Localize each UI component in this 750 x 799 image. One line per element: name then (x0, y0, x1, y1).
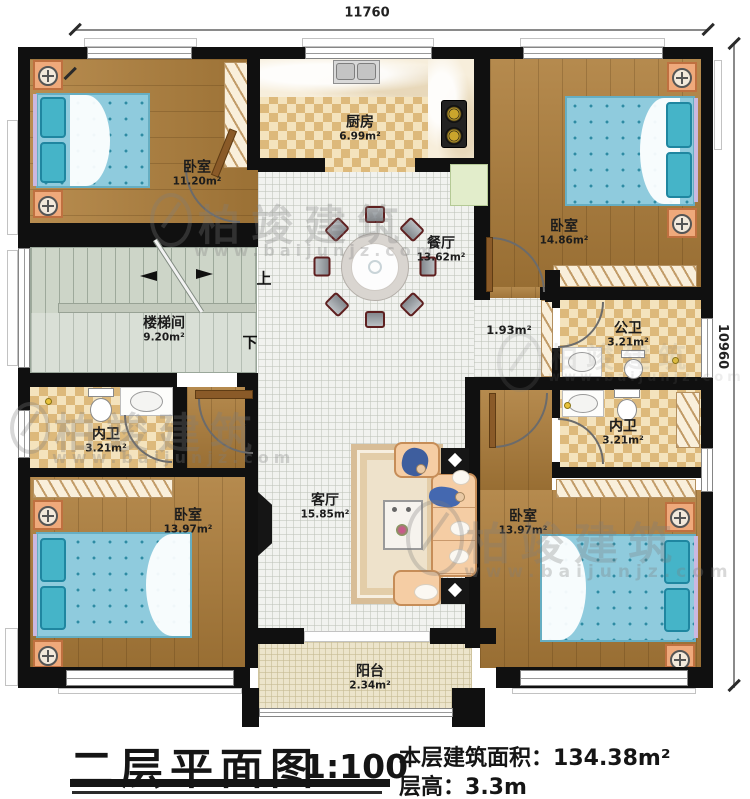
nightstand (33, 60, 63, 90)
wardrobe-bedroom-tr (553, 265, 697, 287)
window-sill (512, 688, 696, 694)
bed-pillow (40, 142, 66, 183)
lamp-icon (38, 196, 58, 216)
door-leaf-bedroom-br (489, 393, 496, 448)
watermark-logo-icon (150, 193, 192, 247)
side-table-decor (448, 583, 462, 597)
nightstand (33, 640, 63, 668)
window-sill (7, 250, 18, 366)
bed-pillow (666, 102, 692, 148)
window-sill (520, 38, 665, 47)
dimension-label-right: 10960 (704, 316, 742, 376)
toilet (88, 388, 114, 397)
room-name: 公卫 (607, 321, 648, 337)
room-label-bedroom-bl: 卧室 13.97m² (164, 508, 213, 537)
room-name: 卧室 (173, 160, 222, 176)
duct-shaft-bath-right (676, 392, 700, 448)
side-table-decor (448, 453, 462, 467)
room-name: 餐厅 (417, 236, 466, 252)
stair-direction-arrow-left (140, 271, 157, 281)
room-name: 阳台 (349, 664, 390, 680)
room-label-living: 客厅 15.85m² (301, 493, 350, 522)
room-name: 厨房 (339, 115, 380, 131)
stair-down-label: 下 (242, 332, 257, 353)
sink-basin (568, 394, 598, 413)
nightstand (665, 644, 695, 668)
title-underline-thick (70, 779, 390, 787)
balcony-pillar-right (452, 688, 485, 727)
person-head (416, 464, 426, 474)
room-name: 客厅 (301, 493, 350, 509)
wardrobe-bedroom-br (556, 479, 696, 498)
bed-pillow (40, 586, 66, 630)
lamp-icon (38, 646, 58, 666)
bed-headboard (33, 534, 37, 636)
room-name: 卧室 (540, 219, 589, 235)
window-stairwell (18, 248, 30, 368)
room-area: 9.20m² (143, 332, 185, 345)
window-sill (58, 688, 242, 694)
wall (173, 387, 187, 468)
lamp-icon (672, 214, 692, 234)
wall (30, 468, 245, 477)
dining-chair (365, 206, 385, 223)
title-underline-thin (72, 791, 382, 794)
lamp-icon (672, 68, 692, 88)
bed-headboard (33, 94, 37, 186)
floor-drain (672, 357, 679, 364)
side-table (441, 578, 469, 604)
bed-sheet (146, 534, 190, 636)
room-area: 3.21m² (602, 435, 643, 448)
room-name: 卧室 (499, 509, 548, 525)
window-kitchen (305, 47, 432, 59)
floor-area-text: 本层建筑面积：134.38m² (399, 740, 670, 772)
floor-drain (45, 398, 52, 405)
bed-pillow (664, 588, 690, 632)
watermark-logo-leaf (161, 202, 182, 229)
wall (430, 628, 496, 644)
watermark-logo-icon (10, 402, 50, 454)
room-label-bath-left: 内卫 3.21m² (85, 427, 126, 456)
kitchen-sink-basin-left (336, 63, 355, 80)
sofa-cushion (414, 584, 438, 600)
balcony-pillar-left (242, 688, 259, 727)
room-label-bedroom-tr: 卧室 14.86m² (540, 219, 589, 248)
window-sill (714, 60, 722, 150)
dimension-right: 10960 (716, 323, 731, 368)
watermark-logo-icon (406, 500, 464, 576)
sofa-cushion (452, 470, 470, 485)
nightstand (665, 502, 695, 532)
bed-pillow (666, 152, 692, 198)
stove-burner (445, 127, 463, 145)
window-bedroom-tl (87, 47, 192, 59)
bed-headboard (694, 98, 698, 202)
wall (540, 287, 701, 300)
wall (250, 628, 304, 644)
watermark-logo-icon (497, 332, 543, 392)
bed-pillow (664, 540, 690, 584)
nightstand (33, 190, 63, 218)
room-area: 13.62m² (417, 252, 466, 265)
toilet (624, 359, 643, 379)
stair-direction-arrow-right (196, 269, 213, 279)
room-area: 15.85m² (301, 509, 350, 522)
balcony-threshold (304, 631, 430, 642)
plan-title: 二层平面图 (70, 735, 320, 797)
bed-pillow (40, 538, 66, 582)
door-leaf-bedroom-bl (195, 390, 253, 399)
window-bedroom-bl (66, 670, 234, 686)
room-label-bedroom-br: 卧室 13.97m² (499, 509, 548, 538)
lamp-icon (38, 506, 58, 526)
floor-area-label: 本层建筑面积： (399, 746, 553, 771)
room-area: 14.86m² (540, 235, 589, 248)
room-area: 3.21m² (85, 443, 126, 456)
room-label-bath-right: 内卫 3.21m² (602, 419, 643, 448)
kitchen-door-threshold (325, 158, 415, 172)
coffee-table-knob (392, 507, 397, 512)
wardrobe-bedroom-bl (33, 479, 173, 498)
window-sill (302, 38, 434, 47)
room-label-balcony: 阳台 2.34m² (349, 664, 390, 693)
watermark-logo-leaf (20, 411, 40, 437)
room-label-public-bath: 公卫 3.21m² (607, 321, 648, 350)
room-area: 3.21m² (607, 337, 648, 350)
room-area: 2.34m² (349, 680, 390, 693)
nightstand (667, 62, 697, 92)
sink-basin (568, 352, 596, 372)
person-head (455, 492, 465, 502)
room-area: 13.97m² (499, 525, 548, 538)
room-label-dining: 餐厅 13.62m² (417, 236, 466, 265)
wall (18, 223, 258, 247)
watermark-logo-leaf (509, 342, 532, 372)
lamp-icon (670, 508, 690, 528)
room-label-kitchen: 厨房 6.99m² (339, 115, 380, 144)
balcony-railing (259, 708, 453, 717)
toilet (90, 398, 112, 422)
room-area: 11.20m² (173, 176, 222, 189)
nightstand (33, 500, 63, 530)
dining-chair (365, 311, 385, 328)
stair-up-label: 上 (256, 268, 271, 289)
floor-height-text: 层高：3.3m (399, 769, 527, 799)
floor-plan-page: 卧室 11.20m² 厨房 6.99m² 卧室 14.86m² 餐厅 13.62… (0, 0, 750, 799)
toilet (614, 389, 640, 398)
kitchen-cabinet (450, 164, 488, 206)
floor-area-value: 134.38m² (553, 746, 670, 771)
window-sill (7, 120, 18, 235)
stair-landing-rail (58, 303, 257, 313)
window-sill (84, 38, 197, 47)
window-bedroom-tr (523, 47, 663, 59)
coffee-table-knob (406, 507, 411, 512)
floor-height-value: 3.3m (465, 775, 527, 799)
nightstand (667, 208, 697, 238)
watermark-logo-leaf (420, 512, 449, 551)
window-sill (5, 628, 18, 686)
floor-height-label: 层高： (399, 775, 465, 799)
lamp-icon (38, 66, 58, 86)
room-name: 卧室 (164, 508, 213, 524)
bed-pillow (40, 97, 66, 138)
window-bath-right (701, 448, 713, 492)
dimension-line-top (75, 29, 708, 31)
window-bedroom-br (520, 670, 688, 686)
room-name: 内卫 (85, 427, 126, 443)
room-name: 楼梯间 (143, 316, 185, 332)
wall (258, 158, 325, 172)
bed-headboard (694, 536, 698, 638)
wall (247, 59, 260, 170)
wall (552, 467, 701, 478)
room-name: 内卫 (602, 419, 643, 435)
kitchen-sink-basin-right (357, 63, 376, 80)
dimension-top: 11760 (344, 6, 389, 21)
toilet (621, 350, 645, 358)
sink-basin (130, 391, 163, 412)
room-area: 6.99m² (339, 131, 380, 144)
door-leaf-bedroom-tr (486, 237, 493, 292)
room-label-bedroom-tl: 卧室 11.20m² (173, 160, 222, 189)
room-area: 13.97m² (164, 524, 213, 537)
room-label-stairwell: 楼梯间 9.20m² (143, 316, 185, 345)
dining-table-center (368, 260, 382, 274)
dining-chair (314, 257, 331, 277)
wall (18, 373, 177, 387)
floor-drain (564, 402, 571, 409)
stove-burner (445, 105, 463, 123)
